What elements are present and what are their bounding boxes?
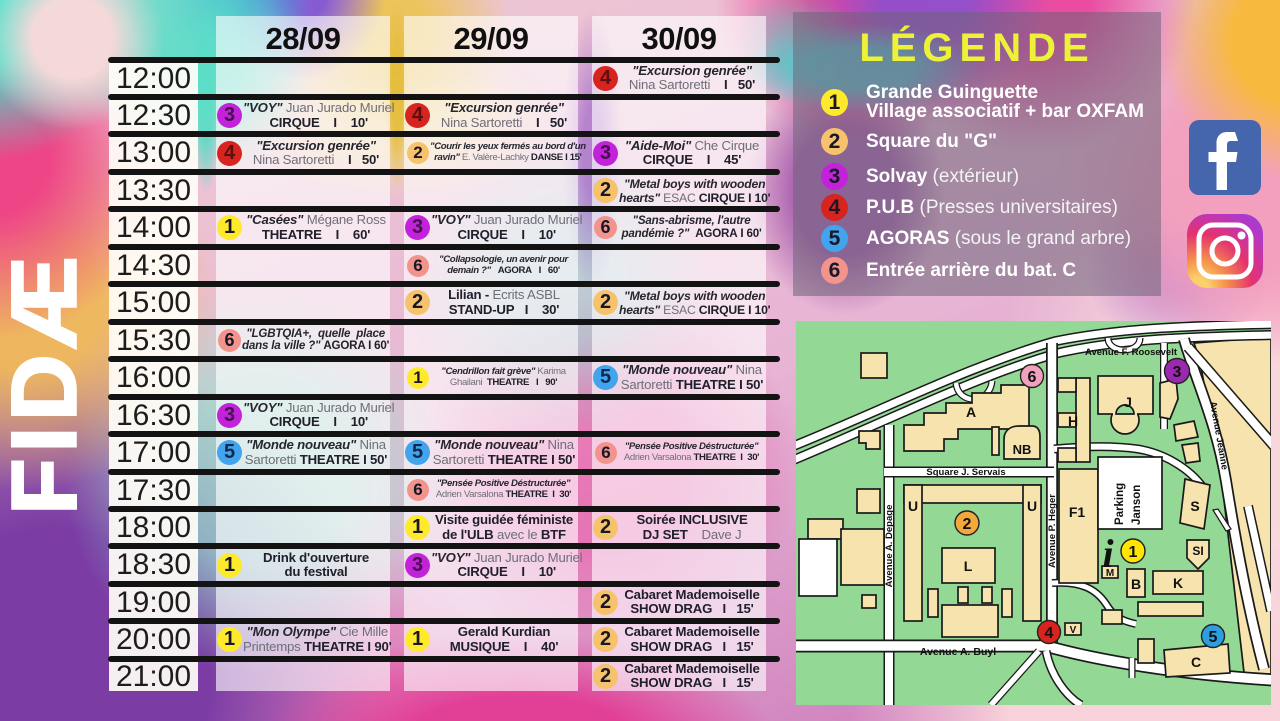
svg-text:1: 1 bbox=[1129, 544, 1138, 561]
svg-text:H: H bbox=[1068, 413, 1078, 429]
svg-text:i: i bbox=[1102, 531, 1113, 576]
svg-text:V: V bbox=[1070, 625, 1077, 636]
svg-text:J: J bbox=[1124, 394, 1132, 410]
svg-text:S: S bbox=[1190, 498, 1199, 514]
svg-text:A: A bbox=[966, 404, 976, 420]
svg-text:K: K bbox=[1173, 575, 1183, 591]
svg-text:Avenue F. Roosevelt: Avenue F. Roosevelt bbox=[1085, 347, 1178, 358]
svg-text:U: U bbox=[908, 498, 918, 514]
svg-text:2: 2 bbox=[963, 516, 972, 533]
svg-text:Avenue P. Heger: Avenue P. Heger bbox=[1047, 494, 1058, 568]
svg-text:B: B bbox=[1131, 576, 1141, 592]
svg-text:Avenue A. Depage: Avenue A. Depage bbox=[884, 505, 895, 588]
svg-text:5: 5 bbox=[1209, 629, 1218, 646]
svg-text:Square J. Servais: Square J. Servais bbox=[926, 467, 1005, 478]
svg-text:C: C bbox=[1191, 654, 1201, 670]
svg-text:6: 6 bbox=[1028, 369, 1037, 386]
svg-text:Avenue A. Buyl: Avenue A. Buyl bbox=[920, 646, 996, 658]
svg-text:Janson: Janson bbox=[1131, 485, 1143, 525]
svg-text:L: L bbox=[964, 558, 973, 574]
svg-text:Parking: Parking bbox=[1114, 483, 1126, 525]
svg-text:SI: SI bbox=[1192, 544, 1203, 558]
svg-text:NB: NB bbox=[1013, 442, 1032, 457]
svg-text:F1: F1 bbox=[1069, 504, 1086, 520]
svg-text:4: 4 bbox=[1045, 625, 1054, 642]
svg-text:3: 3 bbox=[1173, 364, 1182, 381]
svg-text:U: U bbox=[1027, 498, 1037, 514]
